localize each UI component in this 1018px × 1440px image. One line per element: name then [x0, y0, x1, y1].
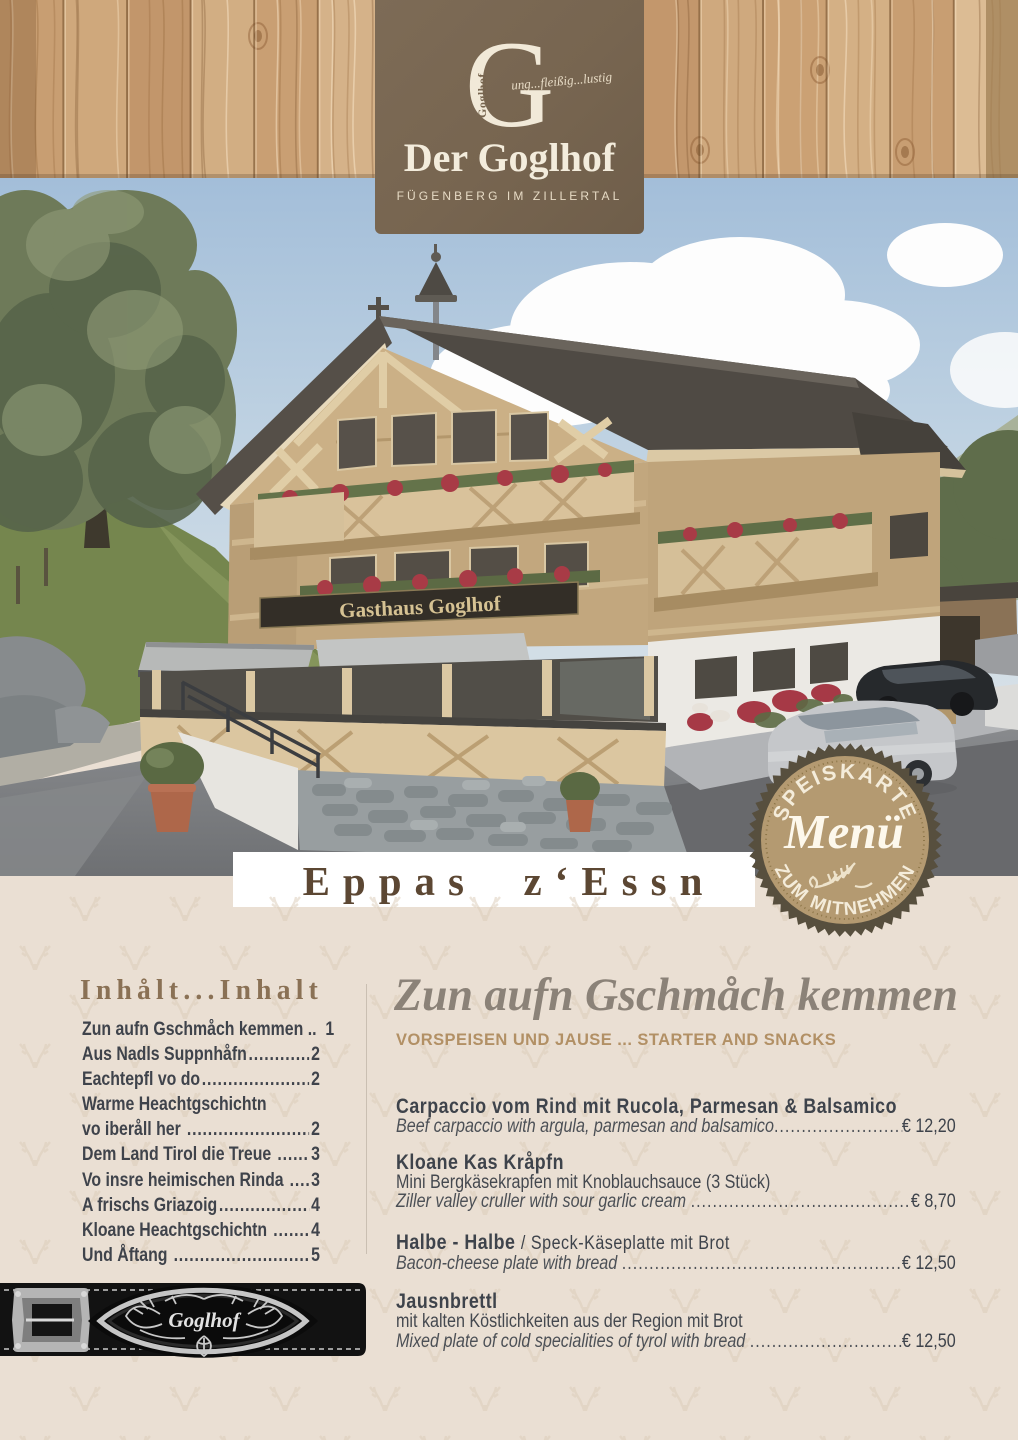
svg-text:Goglhof: Goglhof — [168, 1308, 241, 1332]
svg-text:Menü: Menü — [783, 804, 904, 859]
